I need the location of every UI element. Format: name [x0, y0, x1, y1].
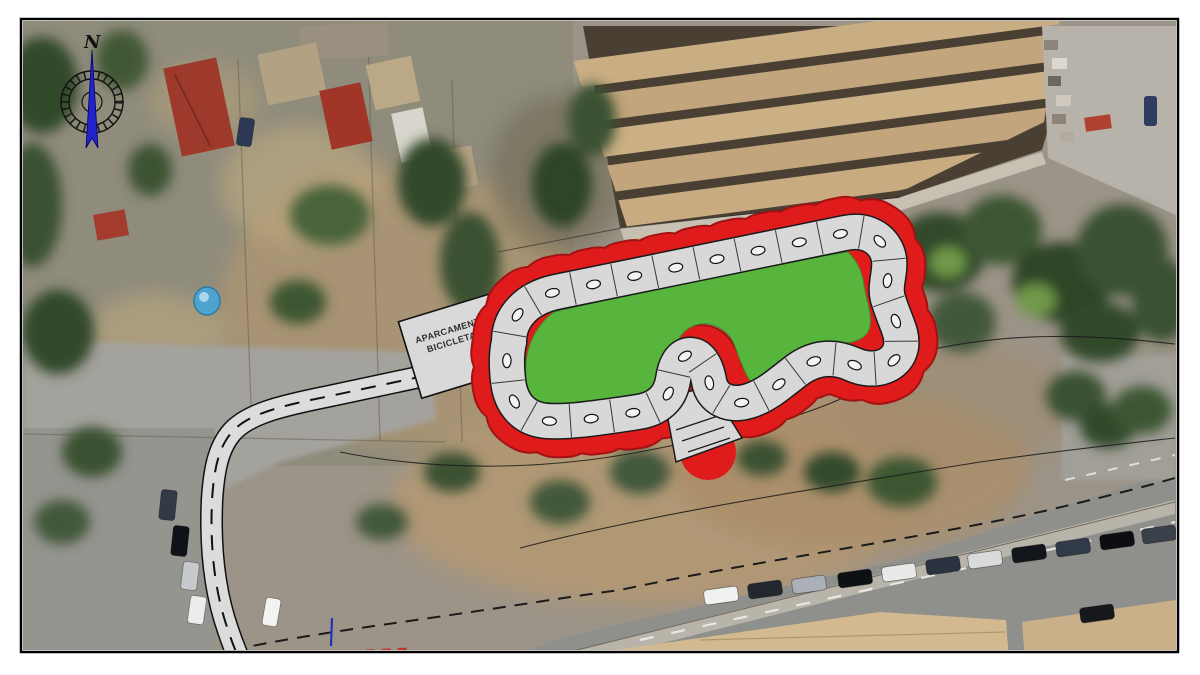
track-roller-marker	[503, 354, 512, 368]
parked-car	[187, 595, 207, 625]
track-roller-marker	[542, 416, 556, 425]
parked-car	[1144, 96, 1157, 126]
blue-survey-tick	[331, 618, 332, 646]
site-plan-sheet: APARCAMENTO BICICLETAS	[0, 0, 1200, 675]
parked-car	[180, 561, 199, 591]
compass-north-label: N	[83, 32, 102, 53]
parked-car	[170, 525, 189, 557]
pool	[194, 287, 220, 315]
parked-car	[158, 489, 177, 521]
